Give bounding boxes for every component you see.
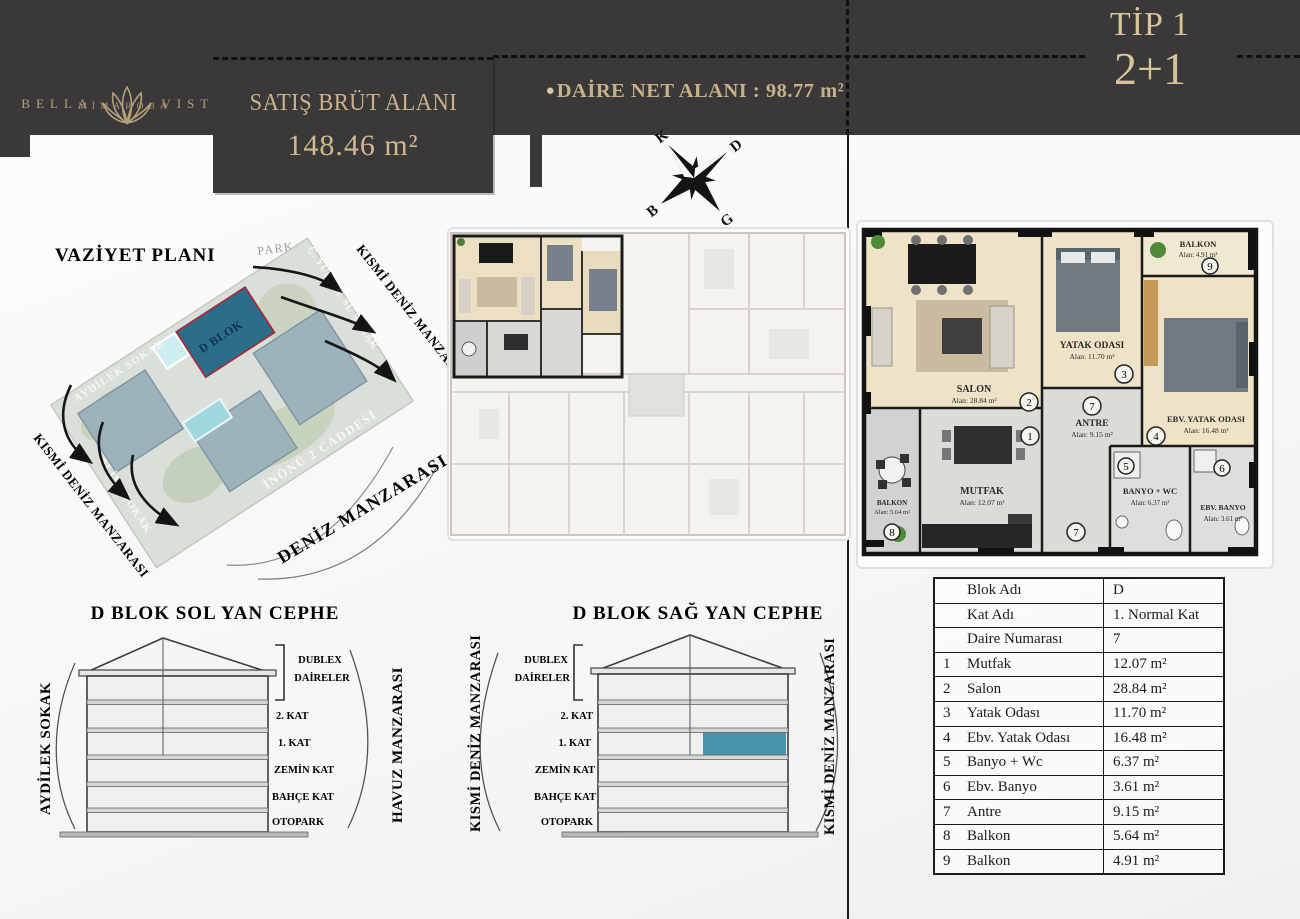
unit-type-line1: TİP 1: [1060, 6, 1240, 44]
row-no: 8: [935, 828, 967, 845]
badge-7b: 7: [1073, 527, 1079, 539]
row-value: 9.15 m²: [1103, 800, 1223, 824]
row-value: 1. Normal Kat: [1103, 604, 1223, 628]
floor-1kat: 1. KAT: [559, 738, 591, 749]
brand-logo: BELLA VISTA MİMAROBA: [15, 30, 235, 125]
badge-5: 5: [1123, 461, 1129, 473]
badge-2: 2: [1026, 397, 1032, 409]
floor-zemin: ZEMİN KAT: [274, 764, 334, 776]
mutfak-area: Alan: 12.07 m²: [959, 498, 1005, 507]
elevation-right: D BLOK SAĞ YAN CEPHE DUBLEX DAİRELER 2. …: [450, 595, 870, 855]
gross-area-box: SATIŞ BRÜT ALANI 148.46 m²: [213, 57, 493, 193]
row-label: Ebv. Yatak Odası: [967, 730, 1103, 747]
bullet-icon: ●: [546, 83, 555, 99]
floor-2kat: 2. KAT: [276, 711, 308, 722]
table-row: 8Balkon5.64 m²: [935, 824, 1223, 849]
table-row: 4Ebv. Yatak Odası16.48 m²: [935, 726, 1223, 751]
salon-label: SALON: [957, 384, 992, 395]
floor-1kat: 1. KAT: [278, 738, 310, 749]
row-label: Daire Numarası: [967, 631, 1103, 648]
table-row: 2Salon28.84 m²: [935, 676, 1223, 701]
yatak-label: YATAK ODASI: [1060, 341, 1125, 351]
table-row: 9Balkon4.91 m²: [935, 849, 1223, 874]
floor-plate-plan: [447, 227, 851, 541]
salon-area: Alan: 28.84 m²: [951, 396, 997, 405]
row-value: 7: [1103, 628, 1223, 652]
row-label: Kat Adı: [967, 607, 1103, 624]
ebv-yatak-area: Alan: 16.48 m²: [1183, 426, 1229, 435]
compass-west-label: B: [644, 202, 662, 221]
dublex-label-1: DUBLEX: [298, 655, 342, 666]
row-value: 16.48 m²: [1103, 727, 1223, 751]
header-band-notch: [0, 135, 30, 157]
row-no: 4: [935, 730, 967, 747]
row-value: 12.07 m²: [1103, 653, 1223, 677]
brand-subtitle: MİMAROBA: [15, 102, 235, 112]
antre-label: ANTRE: [1075, 419, 1108, 429]
badge-7a: 7: [1089, 401, 1095, 413]
elevation-right-right-view-label: KISMİ DENİZ MANZARASI: [821, 638, 838, 835]
compass-rose: K D G B: [636, 126, 752, 230]
table-row: Kat Adı1. Normal Kat: [935, 603, 1223, 628]
apartment-plan: SALON Alan: 28.84 m² YATAK ODASI Alan: 1…: [856, 220, 1274, 569]
row-no: 9: [935, 853, 967, 870]
row-value: 11.70 m²: [1103, 702, 1223, 726]
row-value: 6.37 m²: [1103, 751, 1223, 775]
dashed-rule-right: [1237, 55, 1300, 58]
table-row: 1Mutfak12.07 m²: [935, 652, 1223, 677]
table-row: Daire Numarası7: [935, 627, 1223, 652]
ebv-banyo-area: Alan: 3.61 m²: [1204, 515, 1243, 523]
balkon8-label: BALKON: [877, 499, 907, 507]
row-label: Salon: [967, 681, 1103, 698]
row-value: D: [1103, 579, 1223, 603]
table-row: 5Banyo + Wc6.37 m²: [935, 750, 1223, 775]
balkon8-area: Alan: 5.64 m²: [874, 509, 910, 516]
site-plan: VAZİYET PLANI PARK D BLOK AYDİLEK SOKAK …: [5, 233, 455, 581]
gross-area-label: SATIŞ BRÜT ALANI: [249, 90, 457, 117]
elevation-right-title: D BLOK SAĞ YAN CEPHE: [573, 602, 824, 624]
dashed-rule-left: [493, 55, 1085, 58]
ebv-yatak-label: EBV. YATAK ODASI: [1167, 414, 1246, 424]
floor-bahce: BAHÇE KAT: [534, 792, 596, 803]
dashed-rule-vertical: [846, 0, 849, 135]
dublex-label-2: DAİRELER: [294, 672, 350, 684]
badge-8: 8: [889, 527, 895, 539]
row-no: 7: [935, 804, 967, 821]
banyo-wc-label: BANYO + WC: [1123, 486, 1177, 496]
dublex-label-2: DAİRELER: [515, 672, 571, 684]
header-band-notch-right: [530, 135, 542, 187]
area-table: Blok AdıD Kat Adı1. Normal Kat Daire Num…: [933, 577, 1225, 875]
table-row: 3Yatak Odası11.70 m²: [935, 701, 1223, 726]
elevation-left-side-label: AYDİLEK SOKAK: [37, 682, 54, 815]
unit-type-block: TİP 1 2+1: [1060, 6, 1240, 95]
badge-4: 4: [1153, 431, 1159, 443]
compass-east-label: D: [727, 136, 746, 155]
row-no: 3: [935, 705, 967, 722]
row-no: 6: [935, 779, 967, 796]
banyo-wc-area: Alan: 6.37 m²: [1131, 499, 1170, 507]
row-no: 1: [935, 656, 967, 673]
row-value: 3.61 m²: [1103, 776, 1223, 800]
mutfak-label: MUTFAK: [960, 486, 1004, 497]
table-row: 6Ebv. Banyo3.61 m²: [935, 775, 1223, 800]
floor-otopark: OTOPARK: [541, 817, 594, 828]
row-value: 28.84 m²: [1103, 677, 1223, 701]
compass-north-label: K: [652, 127, 671, 147]
row-label: Ebv. Banyo: [967, 779, 1103, 796]
unit-type-line2: 2+1: [1060, 44, 1240, 95]
right-arc: [348, 650, 368, 828]
row-no: 5: [935, 754, 967, 771]
floor-zemin: ZEMİN KAT: [535, 764, 595, 776]
elevation-left-title: D BLOK SOL YAN CEPHE: [91, 603, 340, 624]
row-value: 5.64 m²: [1103, 825, 1223, 849]
dublex-label-1: DUBLEX: [524, 655, 568, 666]
row-label: Balkon: [967, 828, 1103, 845]
row-label: Mutfak: [967, 656, 1103, 673]
net-area-line: ●DAİRE NET ALANI : 98.77 m²: [545, 80, 845, 103]
row-label: Antre: [967, 804, 1103, 821]
row-label: Banyo + Wc: [967, 754, 1103, 771]
elevation-right-left-view-label: KISMİ DENİZ MANZARASI: [467, 635, 484, 832]
balkon9-label: BALKON: [1180, 239, 1218, 249]
row-value: 4.91 m²: [1103, 850, 1223, 874]
floor-bahce: BAHÇE KAT: [272, 792, 334, 803]
elevation-left-view-label: HAVUZ MANZARASI: [390, 667, 406, 823]
row-label: Yatak Odası: [967, 705, 1103, 722]
antre-area: Alan: 9.15 m²: [1071, 430, 1113, 439]
gross-area-value: 148.46 m²: [287, 129, 418, 163]
ebv-banyo-label: EBV. BANYO: [1200, 503, 1245, 512]
row-label: Balkon: [967, 853, 1103, 870]
floor-labels: 2. KAT 1. KAT ZEMİN KAT BAHÇE KAT OTOPAR…: [272, 711, 334, 828]
floor-otopark: OTOPARK: [272, 817, 325, 828]
floor-2kat: 2. KAT: [561, 711, 593, 722]
site-plan-title: VAZİYET PLANI: [55, 245, 216, 266]
floor-labels: 2. KAT 1. KAT ZEMİN KAT BAHÇE KAT OTOPAR…: [534, 711, 596, 828]
table-row: 7Antre9.15 m²: [935, 799, 1223, 824]
badge-6: 6: [1219, 463, 1225, 475]
elevation-left: D BLOK SOL YAN CEPHE DUBLEX DAİRELER 2. …: [20, 595, 440, 855]
net-area-label: DAİRE NET ALANI : 98.77 m²: [557, 80, 845, 102]
badge-3: 3: [1121, 369, 1127, 381]
highlighted-unit-cell: [703, 732, 786, 755]
left-arc: [56, 663, 75, 829]
row-label: Blok Adı: [967, 582, 1103, 599]
yatak-area: Alan: 11.70 m²: [1069, 352, 1115, 361]
table-row: Blok AdıD: [935, 579, 1223, 603]
badge-1: 1: [1027, 431, 1033, 443]
row-no: 2: [935, 681, 967, 698]
badge-9: 9: [1207, 261, 1213, 273]
dublex-bracket: [574, 645, 583, 700]
